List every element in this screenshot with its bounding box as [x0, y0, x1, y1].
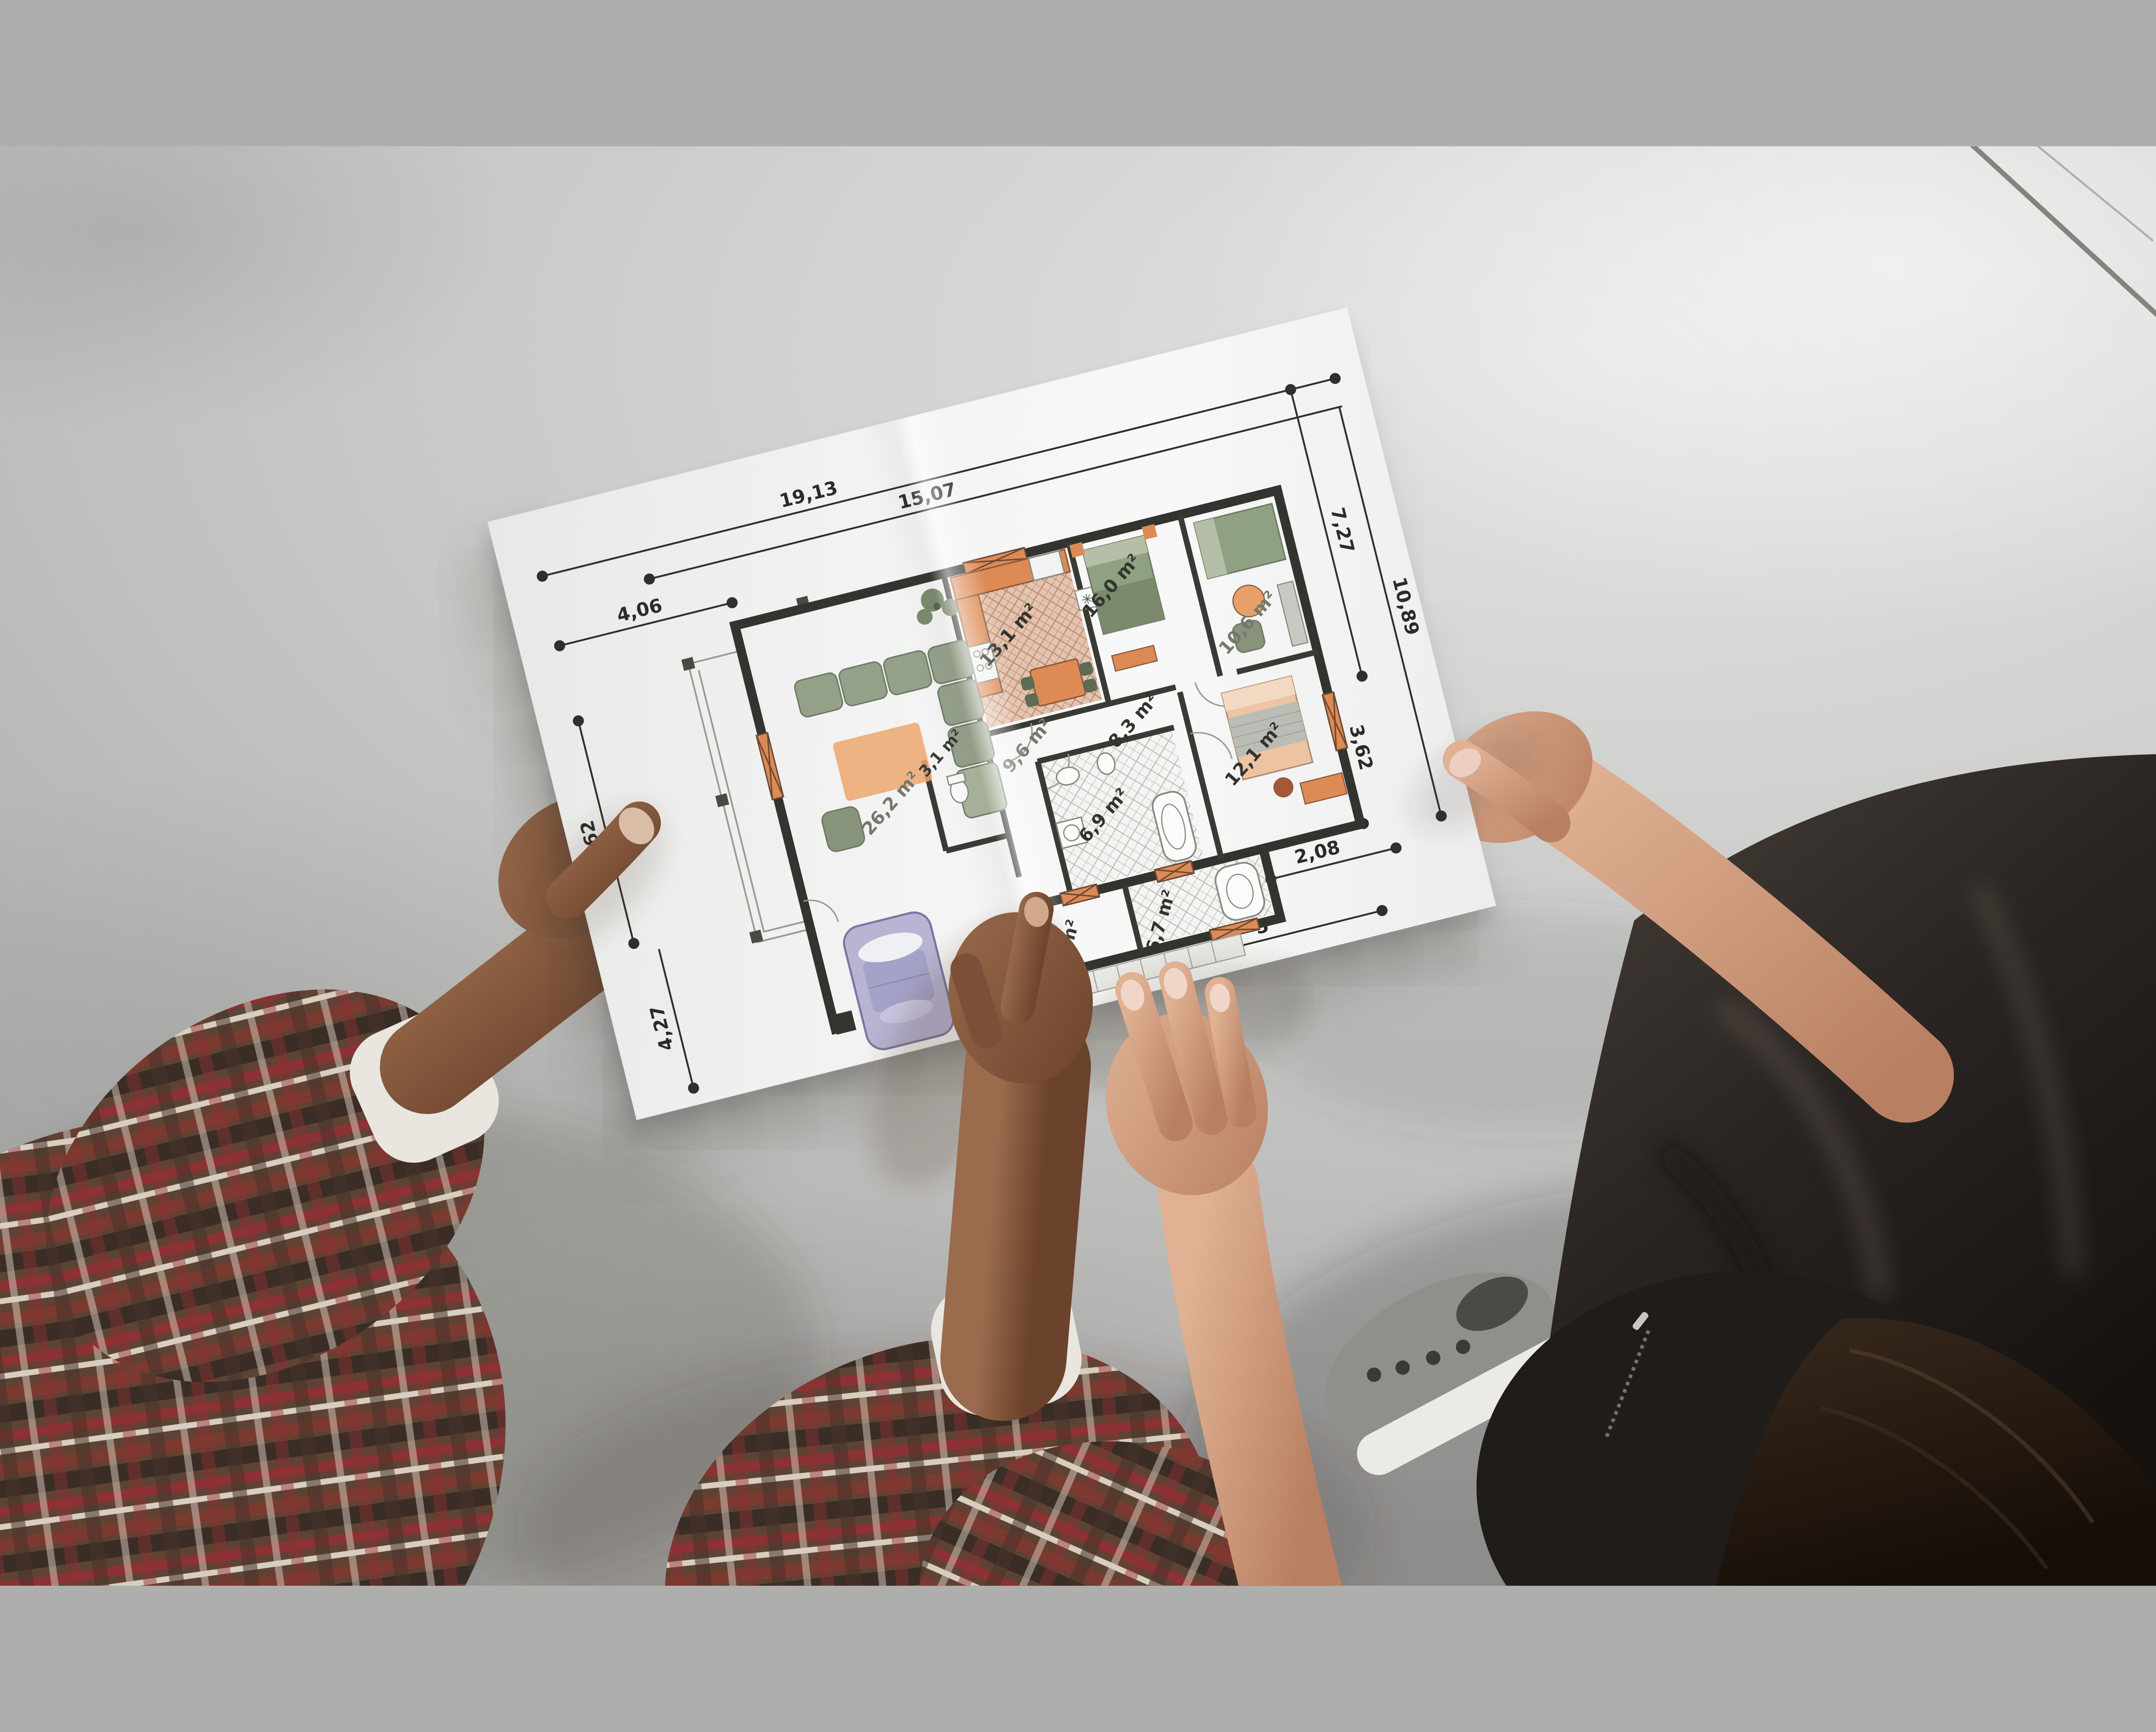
viewport: 19,13 15,07 4,06 6,62 4,27 7,27 10,89 3,… [0, 0, 2156, 1732]
curled-finger [966, 969, 987, 1032]
stage: 19,13 15,07 4,06 6,62 4,27 7,27 10,89 3,… [0, 146, 2156, 1586]
scene-front-layer [0, 146, 2156, 1586]
pointing-forearm [1003, 1067, 1028, 1358]
